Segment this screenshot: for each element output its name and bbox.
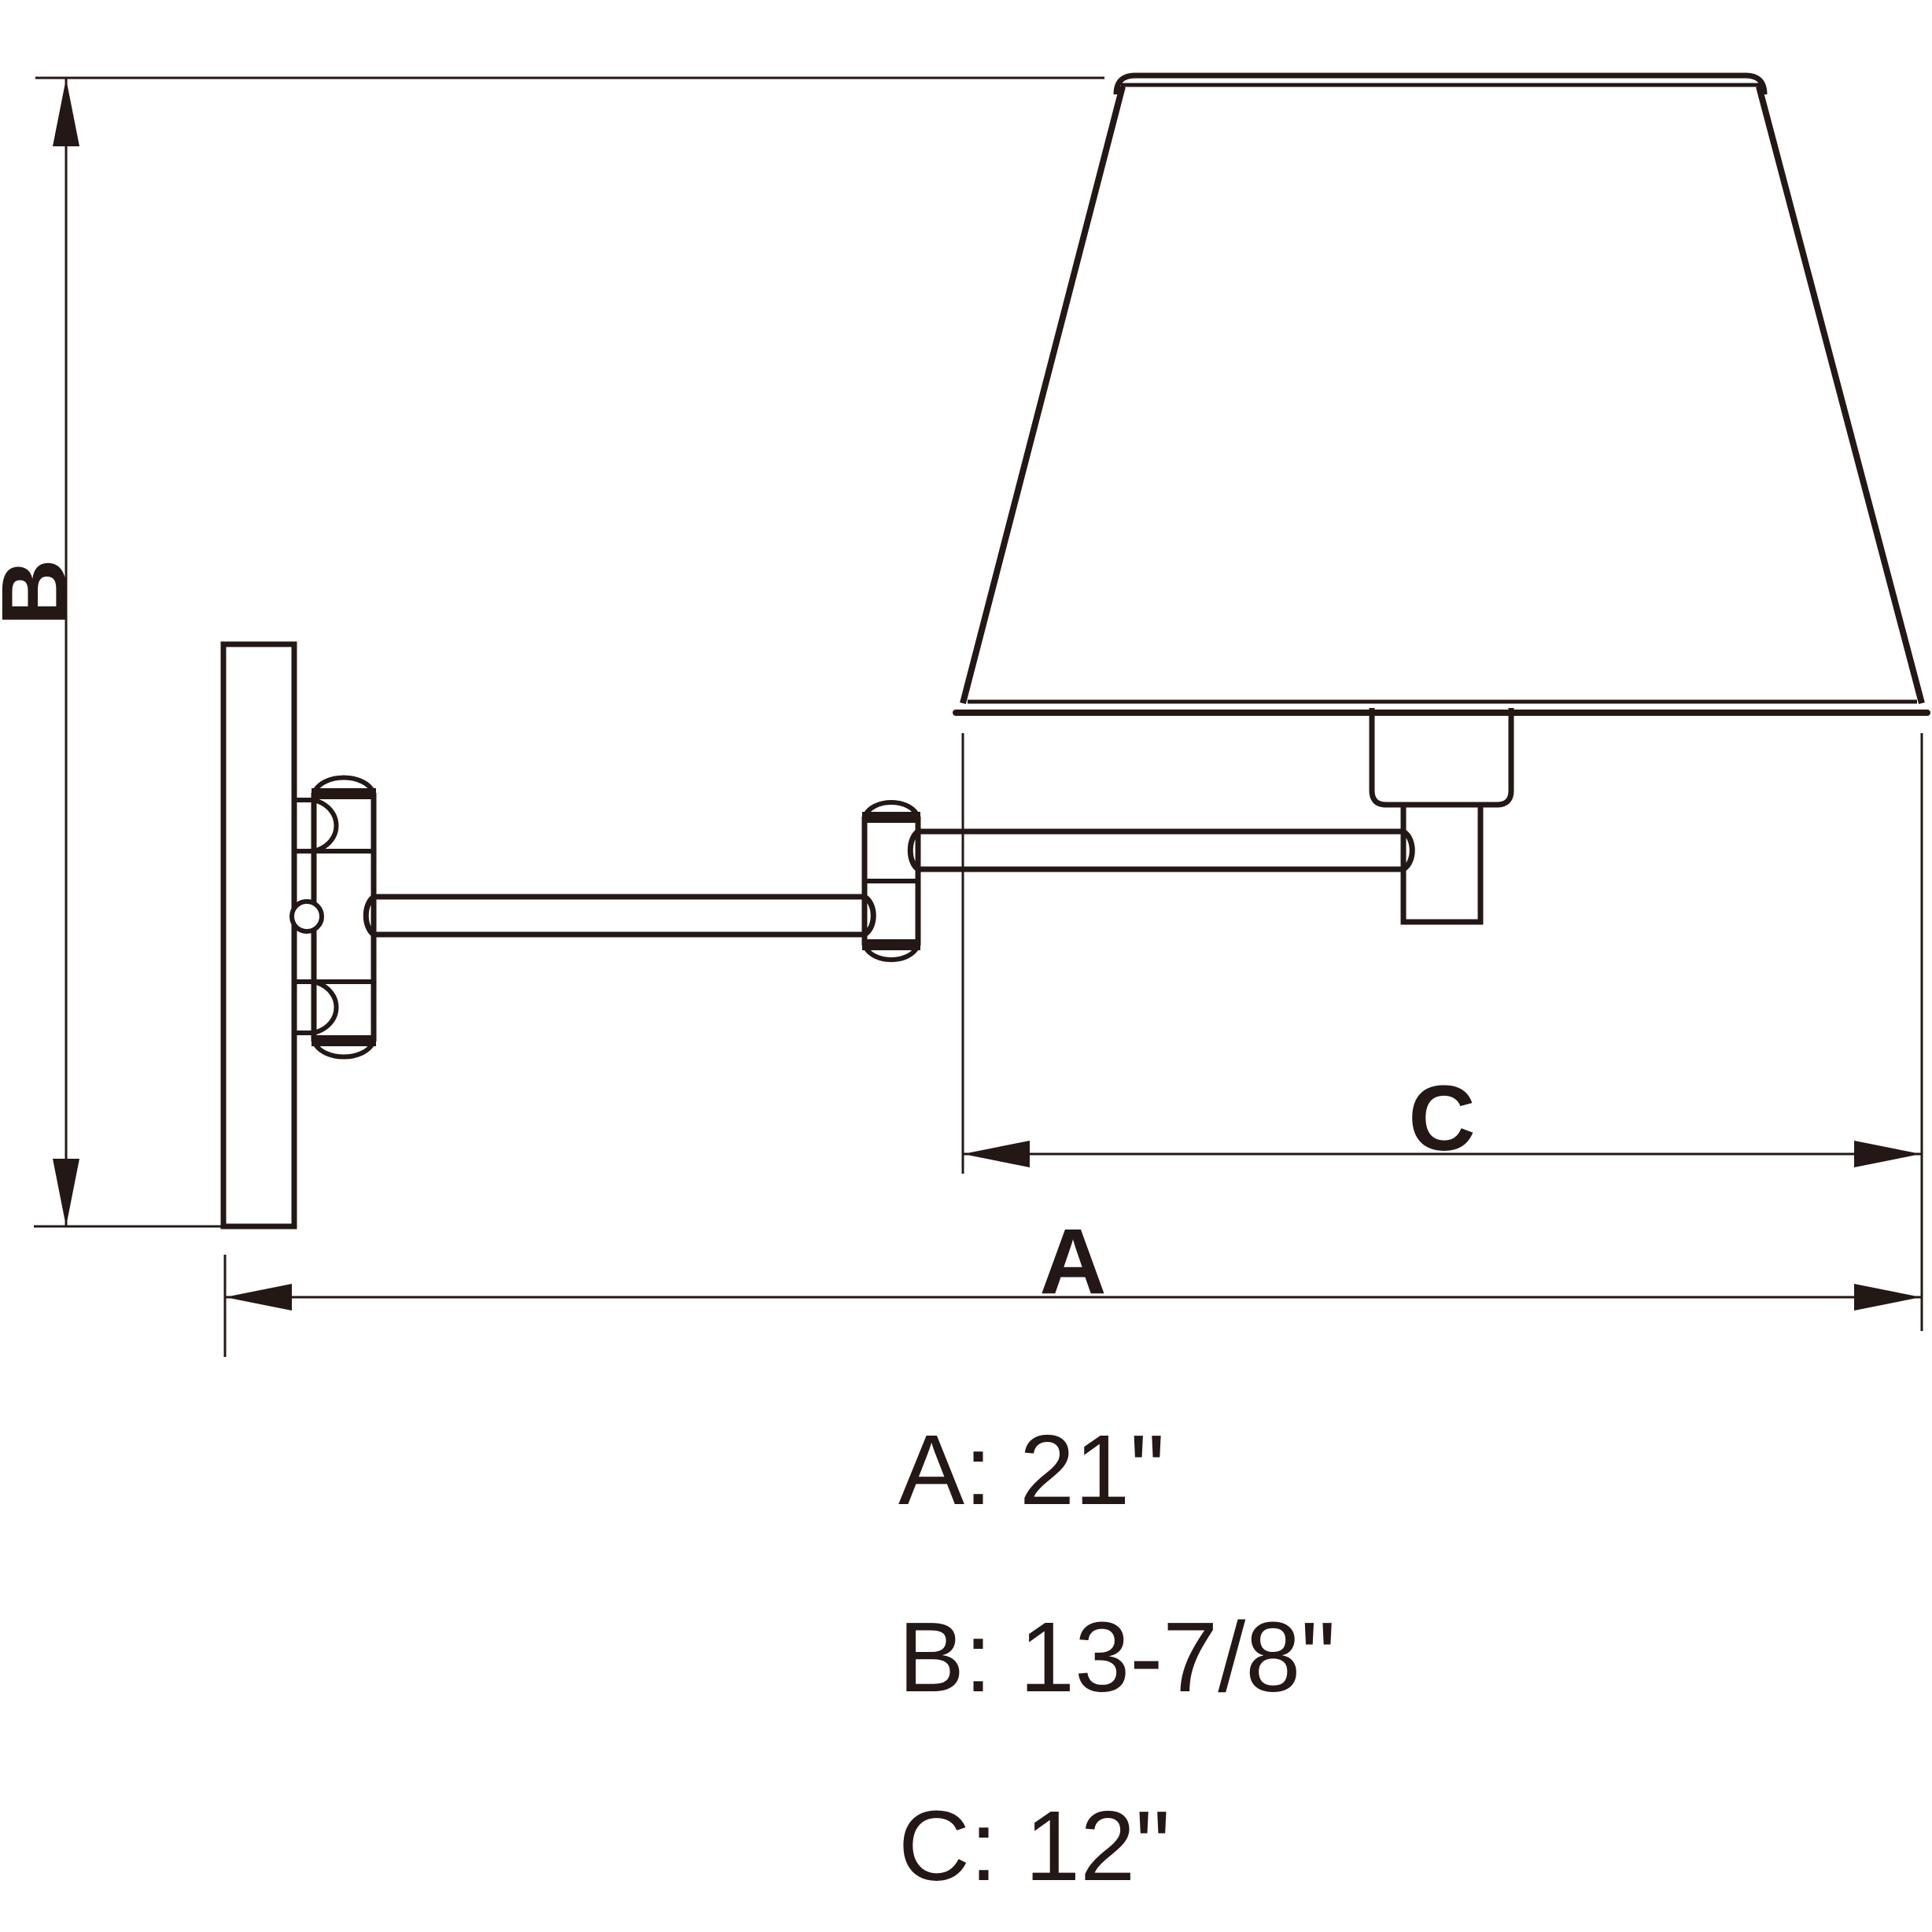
- shade-left-edge: [963, 87, 1123, 703]
- spec-line-c: C: 12": [898, 1790, 1171, 1901]
- sconce-line-drawing: B: [0, 0, 1932, 1932]
- hinge-top-cap: [312, 788, 376, 799]
- lamp-socket-assembly: [1372, 708, 1511, 922]
- spec-list: A: 21" B: 13-7/8" C: 12": [898, 1414, 1336, 1901]
- pivot-pin: [292, 901, 322, 931]
- dimension-a: A: [225, 1210, 1921, 1357]
- arrowhead-c-left-icon: [963, 1141, 1030, 1167]
- dimension-label-b: B: [0, 559, 87, 625]
- spec-line-a: A: 21": [898, 1414, 1165, 1525]
- spec-line-b: B: 13-7/8": [898, 1602, 1336, 1713]
- arrowhead-b-up-icon: [53, 79, 79, 146]
- elbow-bottom-cap: [862, 939, 920, 950]
- lampshade: [956, 76, 1927, 713]
- dimension-label-a: A: [1039, 1210, 1106, 1314]
- arrowhead-c-right-icon: [1854, 1141, 1921, 1167]
- shade-right-edge: [1759, 87, 1922, 703]
- dimension-label-c: C: [1408, 1067, 1475, 1171]
- wall-mount: [223, 644, 376, 1226]
- arrowhead-b-down-icon: [53, 1159, 79, 1226]
- elbow-top-cap: [862, 812, 920, 823]
- socket-cap: [1372, 708, 1511, 805]
- hinge-knuckle-arc-bottom: [314, 982, 337, 1033]
- hinge-knuckle-arc-top: [314, 800, 337, 851]
- dimension-diagram: B: [0, 0, 1932, 1932]
- hinge-bottom-cap: [312, 1035, 376, 1046]
- dimension-b: B: [0, 78, 1104, 1226]
- socket-stem: [1403, 805, 1480, 922]
- arrowhead-a-left-icon: [225, 1284, 292, 1311]
- wall-plate: [223, 644, 294, 1226]
- swing-arm: [366, 802, 1412, 960]
- arrowhead-a-right-icon: [1854, 1284, 1921, 1311]
